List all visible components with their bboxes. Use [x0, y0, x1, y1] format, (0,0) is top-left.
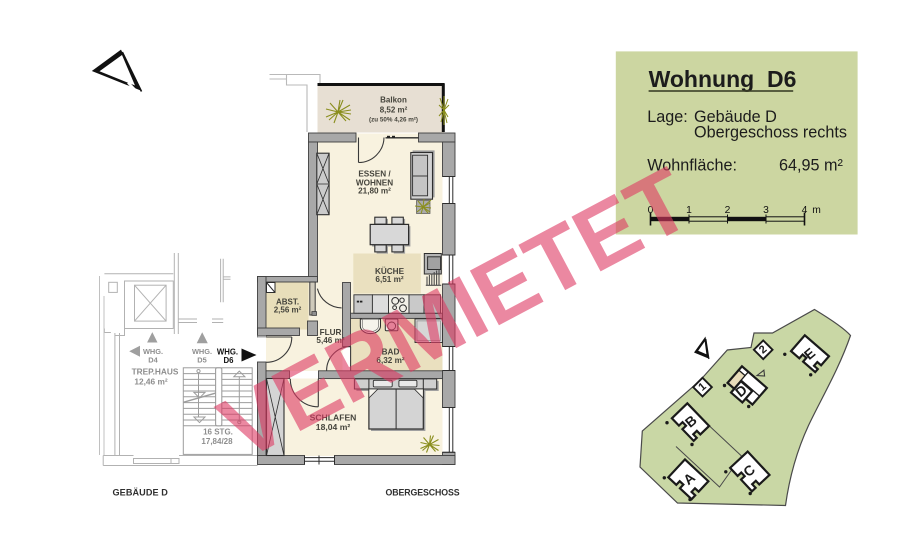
svg-text:8,52 m²: 8,52 m²: [380, 106, 408, 115]
svg-text:ESSEN /: ESSEN /: [358, 170, 391, 179]
svg-text:21,80 m²: 21,80 m²: [358, 187, 391, 196]
svg-text:3: 3: [763, 205, 769, 216]
svg-text:(zu 50% 4,26 m²): (zu 50% 4,26 m²): [369, 117, 418, 124]
svg-text:GEBÄUDE D: GEBÄUDE D: [113, 487, 169, 497]
svg-text:2,56 m²: 2,56 m²: [274, 306, 302, 315]
svg-text:Lage:: Lage:: [647, 108, 688, 126]
svg-text:Wohnung D6: Wohnung D6: [649, 66, 797, 92]
svg-text:OBERGESCHOSS: OBERGESCHOSS: [386, 487, 460, 497]
svg-text:D6: D6: [224, 356, 235, 365]
svg-text:Balkon: Balkon: [380, 96, 407, 105]
svg-text:Obergeschoss rechts: Obergeschoss rechts: [694, 124, 847, 142]
svg-text:64,95 m²: 64,95 m²: [779, 156, 843, 174]
svg-text:m: m: [812, 205, 821, 216]
svg-text:TREP.HAUS: TREP.HAUS: [132, 367, 179, 377]
svg-text:6,51 m²: 6,51 m²: [375, 275, 403, 284]
svg-text:2: 2: [725, 205, 731, 216]
svg-text:D5: D5: [197, 356, 206, 365]
svg-text:D4: D4: [148, 356, 158, 365]
svg-text:12,46 m²: 12,46 m²: [134, 377, 167, 387]
